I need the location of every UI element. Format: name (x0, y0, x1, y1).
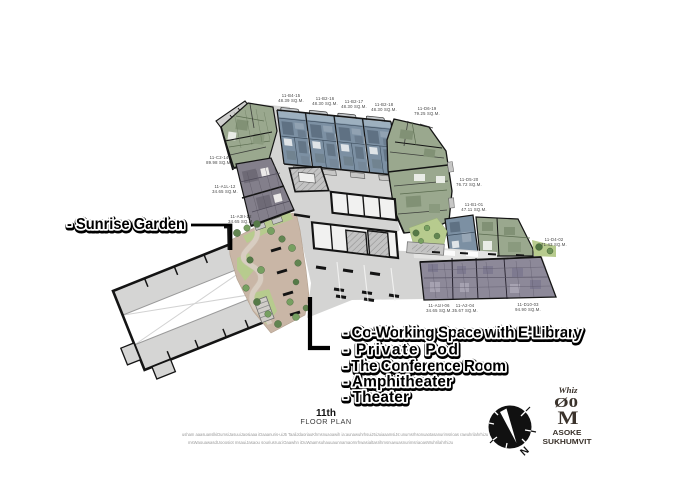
svg-text:usham aaasuanslkiDumsiJasuuiJa: usham aaasuanslkiDumsiJasuuiJaosiaaa iDa… (182, 432, 488, 438)
svg-text:35.67 SQ.M.: 35.67 SQ.M. (452, 308, 478, 313)
svg-text:- The Conference Room: - The Conference Room (343, 358, 506, 375)
svg-text:34.65 SQ.M.: 34.65 SQ.M. (426, 308, 452, 313)
svg-text:- Sunrise Garden: - Sunrise Garden (67, 216, 185, 233)
svg-text:- Co-Working Space with E-Libr: - Co-Working Space with E-Library (343, 325, 582, 342)
svg-text:34.65 SQ.M.: 34.65 SQ.M. (228, 219, 254, 224)
svg-text:FLOOR PLAN: FLOOR PLAN (300, 417, 351, 426)
svg-text:SUKHUMVIT: SUKHUMVIT (543, 437, 593, 446)
svg-text:48.30 SQ.M.: 48.30 SQ.M. (371, 107, 397, 112)
svg-text:ASOKE: ASOKE (553, 428, 582, 437)
svg-text:48.30 SQ.M.: 48.30 SQ.M. (341, 104, 367, 109)
svg-text:79.25 SQ.M.: 79.25 SQ.M. (414, 111, 440, 116)
svg-text:94.90 SQ.M.: 94.90 SQ.M. (515, 307, 541, 312)
svg-text:34.65 SQ.M.: 34.65 SQ.M. (212, 189, 238, 194)
svg-text:48.39 SQ.M.: 48.39 SQ.M. (278, 98, 304, 103)
svg-text:- Theater: - Theater (343, 389, 409, 406)
svg-text:89.98 SQ.M.: 89.98 SQ.M. (206, 160, 232, 165)
svg-text:M: M (558, 408, 579, 429)
svg-text:71.43 SQ.M.: 71.43 SQ.M. (541, 242, 567, 247)
svg-text:Whiz: Whiz (559, 385, 579, 395)
svg-text:48.30 SQ.M.: 48.30 SQ.M. (312, 101, 338, 106)
svg-text:msWaouawasdUooosiot msauiJasao: msWaouawasdUooosiot msauiJasaou souriusr… (188, 440, 453, 446)
svg-text:- Amphitheater: - Amphitheater (343, 374, 452, 391)
svg-text:76.72 SQ.M.: 76.72 SQ.M. (456, 182, 482, 187)
svg-text:- Private Pod: - Private Pod (343, 342, 458, 359)
svg-text:47.11 SQ.M.: 47.11 SQ.M. (461, 207, 486, 212)
